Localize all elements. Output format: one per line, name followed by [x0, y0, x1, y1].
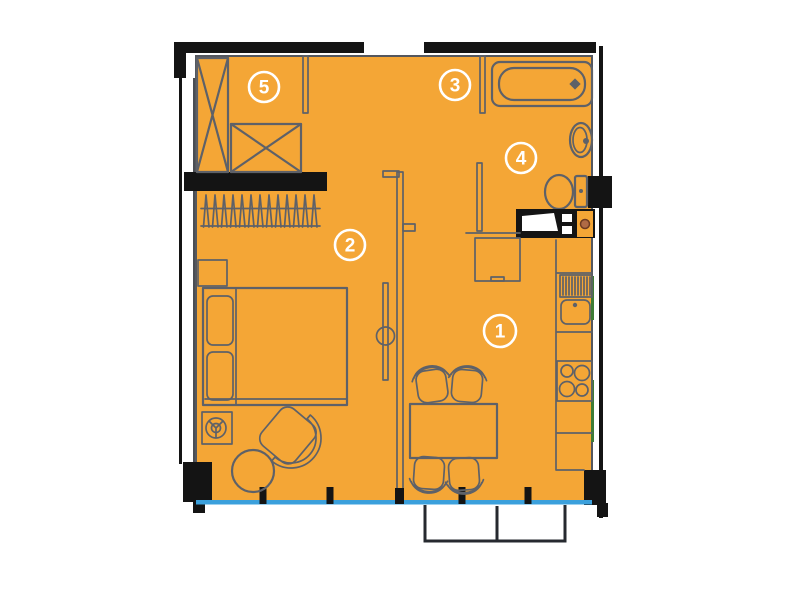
- left-window-inner-frame: [193, 78, 195, 462]
- hall-bedroom-wall: [184, 172, 327, 191]
- right-wall: [599, 46, 603, 518]
- entry-detail-square: [562, 214, 572, 222]
- appliance-knob: [581, 220, 590, 229]
- entry-detail-square: [562, 226, 572, 234]
- window-mullion: [525, 487, 532, 504]
- floor-plan: 1 2 3 4 5: [0, 0, 799, 600]
- top-wall-left: [174, 42, 364, 53]
- window-mullion: [327, 487, 334, 504]
- window-glass-line: [196, 500, 592, 505]
- svg-text:2: 2: [345, 236, 356, 257]
- entry-unit: [516, 209, 595, 238]
- svg-text:1: 1: [495, 322, 506, 343]
- wall-end-post: [395, 488, 404, 504]
- right-bottom-pillar-foot: [597, 503, 608, 517]
- left-window-outer-frame: [179, 76, 182, 464]
- svg-text:5: 5: [259, 78, 270, 99]
- balcony: [425, 505, 565, 541]
- left-bottom-pillar: [183, 462, 212, 502]
- top-wall-right: [424, 42, 596, 53]
- right-bottom-pillar: [584, 470, 606, 505]
- top-left-corner: [174, 42, 186, 78]
- floor-plan-page: 1 2 3 4 5: [0, 0, 799, 600]
- svg-text:3: 3: [450, 76, 461, 97]
- entry-door-leaf: [522, 213, 558, 231]
- right-mid-pillar: [588, 176, 612, 208]
- svg-text:4: 4: [516, 149, 527, 170]
